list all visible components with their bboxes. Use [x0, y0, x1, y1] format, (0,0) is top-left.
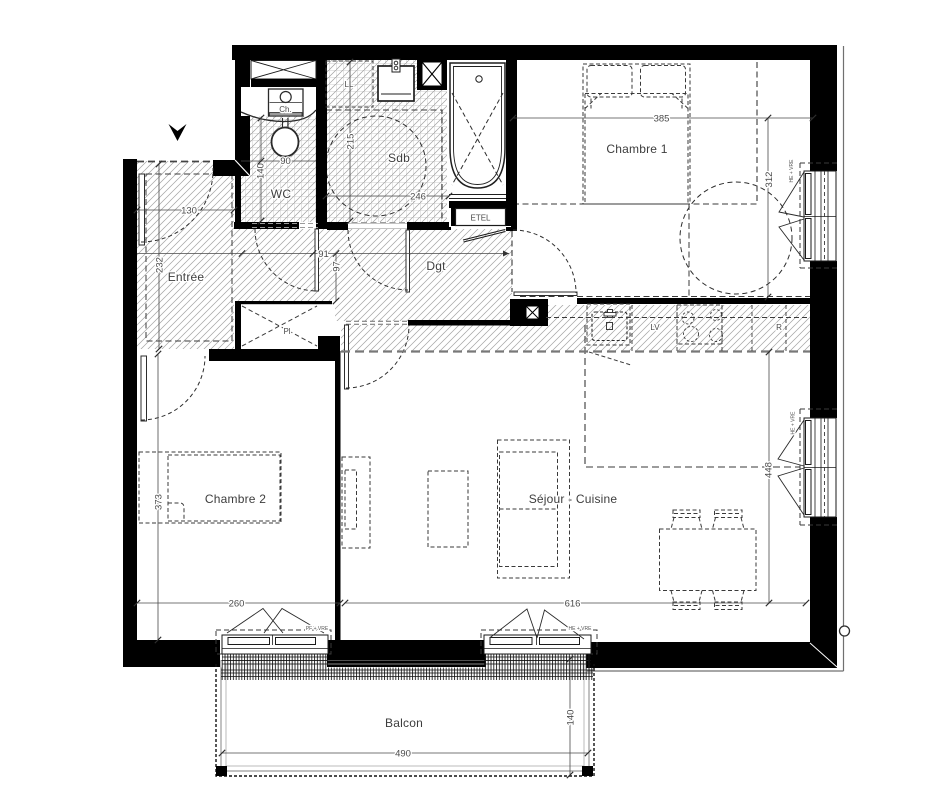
svg-text:LL: LL — [345, 80, 354, 89]
svg-text:490: 490 — [395, 749, 411, 760]
svg-text:Pl: Pl — [283, 327, 290, 336]
svg-text:PF + VRE: PF + VRE — [306, 626, 329, 632]
svg-text:246: 246 — [410, 192, 426, 203]
svg-text:97: 97 — [332, 261, 343, 272]
svg-text:WC: WC — [271, 187, 292, 201]
svg-text:385: 385 — [654, 114, 670, 125]
svg-text:Ch.: Ch. — [279, 105, 291, 114]
svg-text:215: 215 — [346, 134, 357, 150]
svg-text:232: 232 — [155, 257, 166, 273]
svg-text:260: 260 — [229, 599, 245, 610]
svg-text:HE + VRE: HE + VRE — [791, 411, 797, 435]
svg-text:Balcon: Balcon — [385, 716, 423, 730]
svg-text:91: 91 — [318, 249, 329, 260]
svg-text:616: 616 — [565, 599, 581, 610]
svg-text:140: 140 — [566, 710, 577, 726]
svg-text:Chambre 2: Chambre 2 — [205, 492, 266, 506]
svg-text:Dgt: Dgt — [426, 259, 446, 273]
svg-text:Chambre 1: Chambre 1 — [606, 142, 667, 156]
svg-text:140: 140 — [256, 163, 267, 179]
svg-text:448: 448 — [764, 462, 775, 478]
svg-text:130: 130 — [181, 206, 197, 217]
svg-text:ETEL: ETEL — [470, 214, 491, 223]
svg-text:373: 373 — [154, 494, 165, 510]
svg-text:90: 90 — [280, 156, 291, 167]
svg-text:LV: LV — [650, 323, 660, 332]
svg-text:HE + VRE: HE + VRE — [789, 159, 795, 183]
svg-text:Séjour - Cuisine: Séjour - Cuisine — [529, 492, 618, 506]
svg-text:Sdb: Sdb — [388, 151, 410, 165]
svg-text:R: R — [776, 323, 782, 332]
svg-text:Entrée: Entrée — [168, 270, 205, 284]
svg-text:HE + VRE: HE + VRE — [569, 626, 593, 632]
svg-text:312: 312 — [764, 172, 775, 188]
